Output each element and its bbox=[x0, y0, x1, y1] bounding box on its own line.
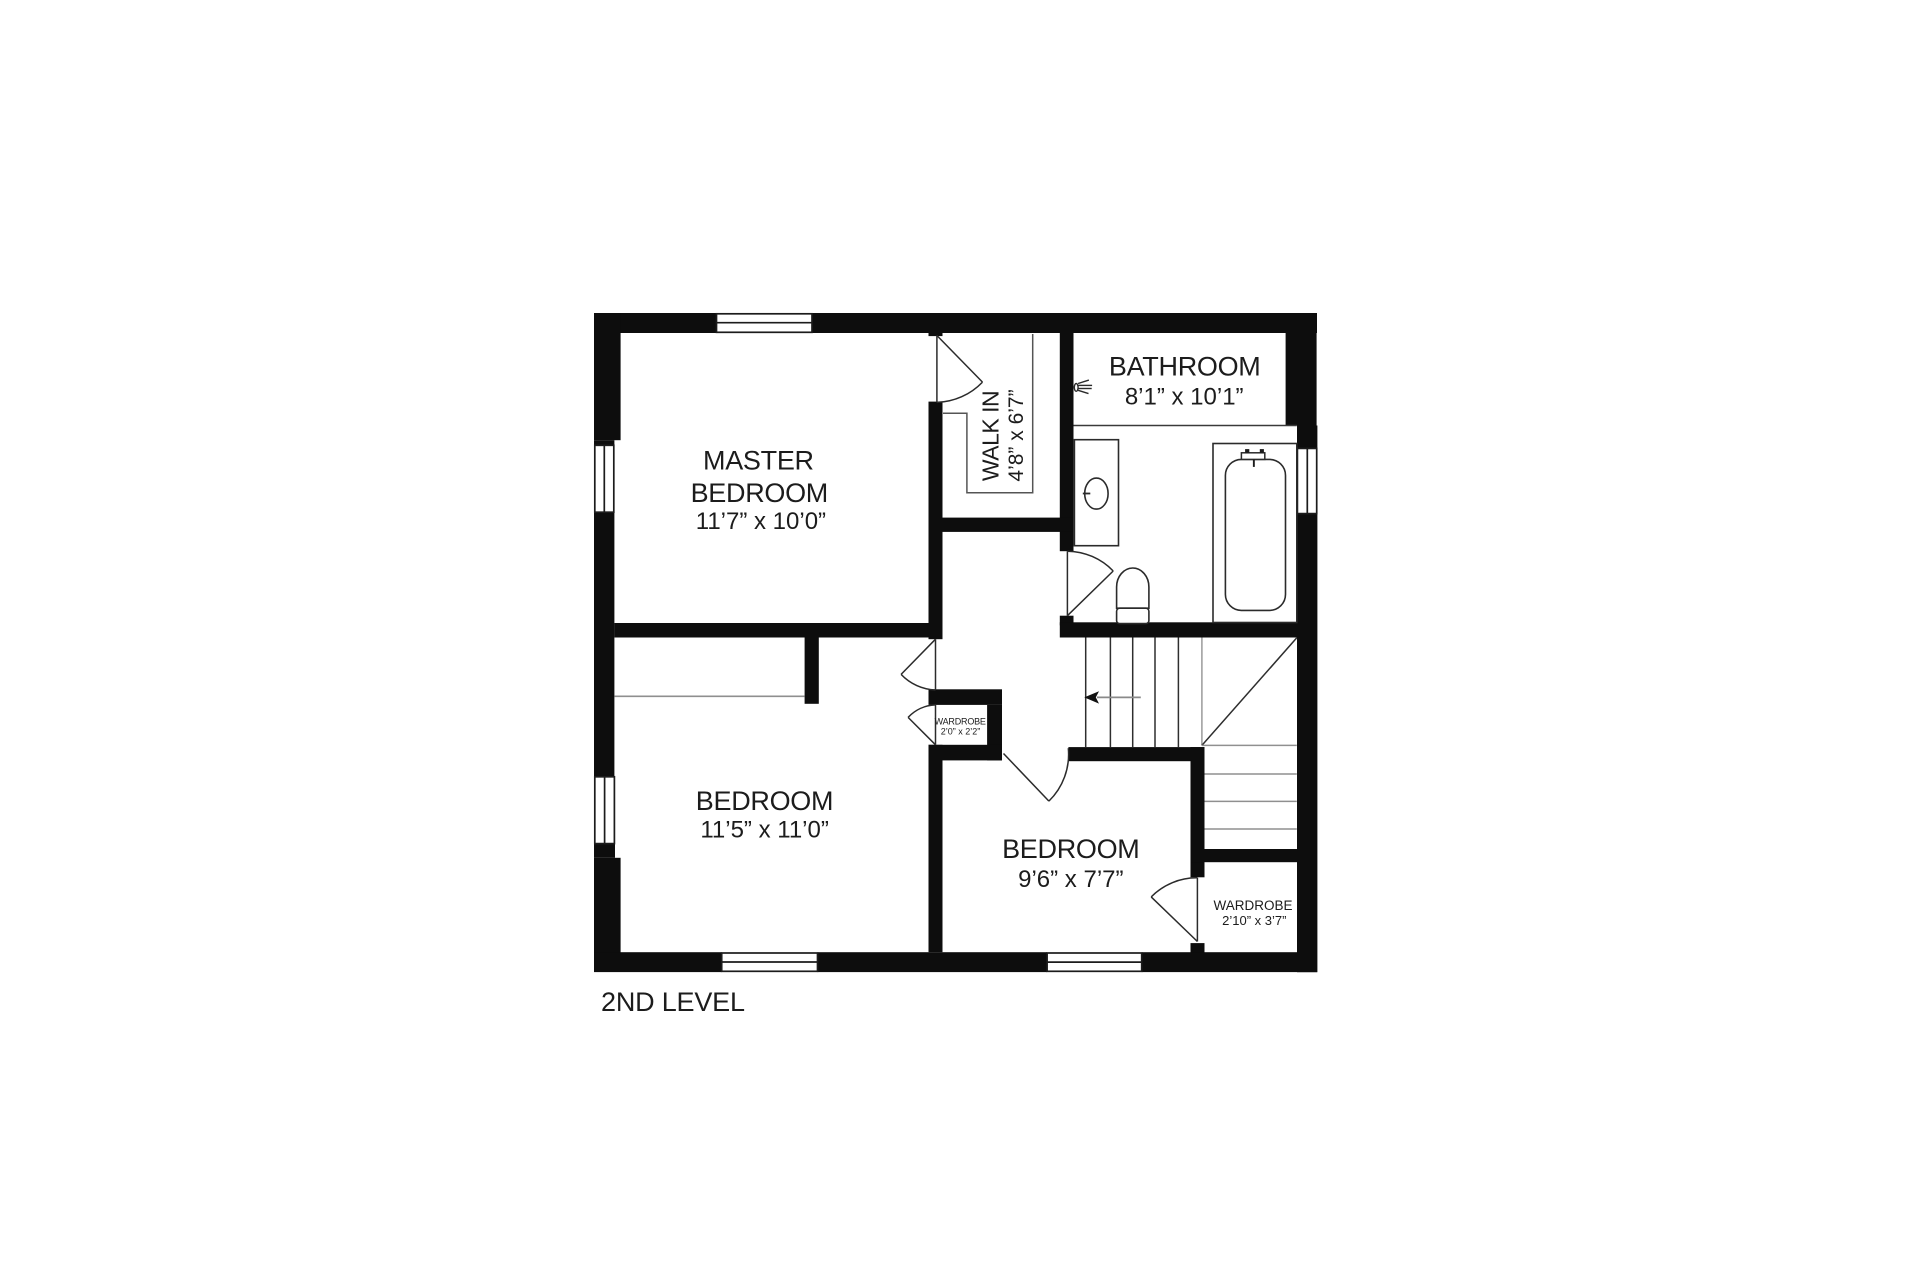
svg-text:2ND LEVEL: 2ND LEVEL bbox=[601, 987, 745, 1017]
svg-text:11’7” x 10’0”: 11’7” x 10’0” bbox=[696, 508, 826, 535]
svg-text:BEDROOM: BEDROOM bbox=[696, 786, 833, 816]
svg-text:WALK IN: WALK IN bbox=[978, 391, 1004, 481]
svg-text:MASTER: MASTER bbox=[703, 446, 814, 476]
svg-text:BATHROOM: BATHROOM bbox=[1109, 352, 1261, 382]
svg-text:BEDROOM: BEDROOM bbox=[691, 478, 828, 508]
svg-text:11’5” x 11’0”: 11’5” x 11’0” bbox=[700, 817, 829, 844]
svg-text:4’8” x 6’7”: 4’8” x 6’7” bbox=[1005, 389, 1028, 481]
svg-text:2’0” x 2’2”: 2’0” x 2’2” bbox=[941, 726, 981, 736]
svg-text:BEDROOM: BEDROOM bbox=[1002, 834, 1139, 864]
svg-text:WARDROBE: WARDROBE bbox=[1213, 898, 1292, 913]
svg-text:9’6” x 7’7”: 9’6” x 7’7” bbox=[1018, 866, 1123, 893]
svg-text:8’1” x 10’1”: 8’1” x 10’1” bbox=[1125, 384, 1244, 411]
svg-text:WARDROBE: WARDROBE bbox=[935, 716, 986, 726]
svg-text:2’10” x 3’7”: 2’10” x 3’7” bbox=[1222, 913, 1286, 928]
